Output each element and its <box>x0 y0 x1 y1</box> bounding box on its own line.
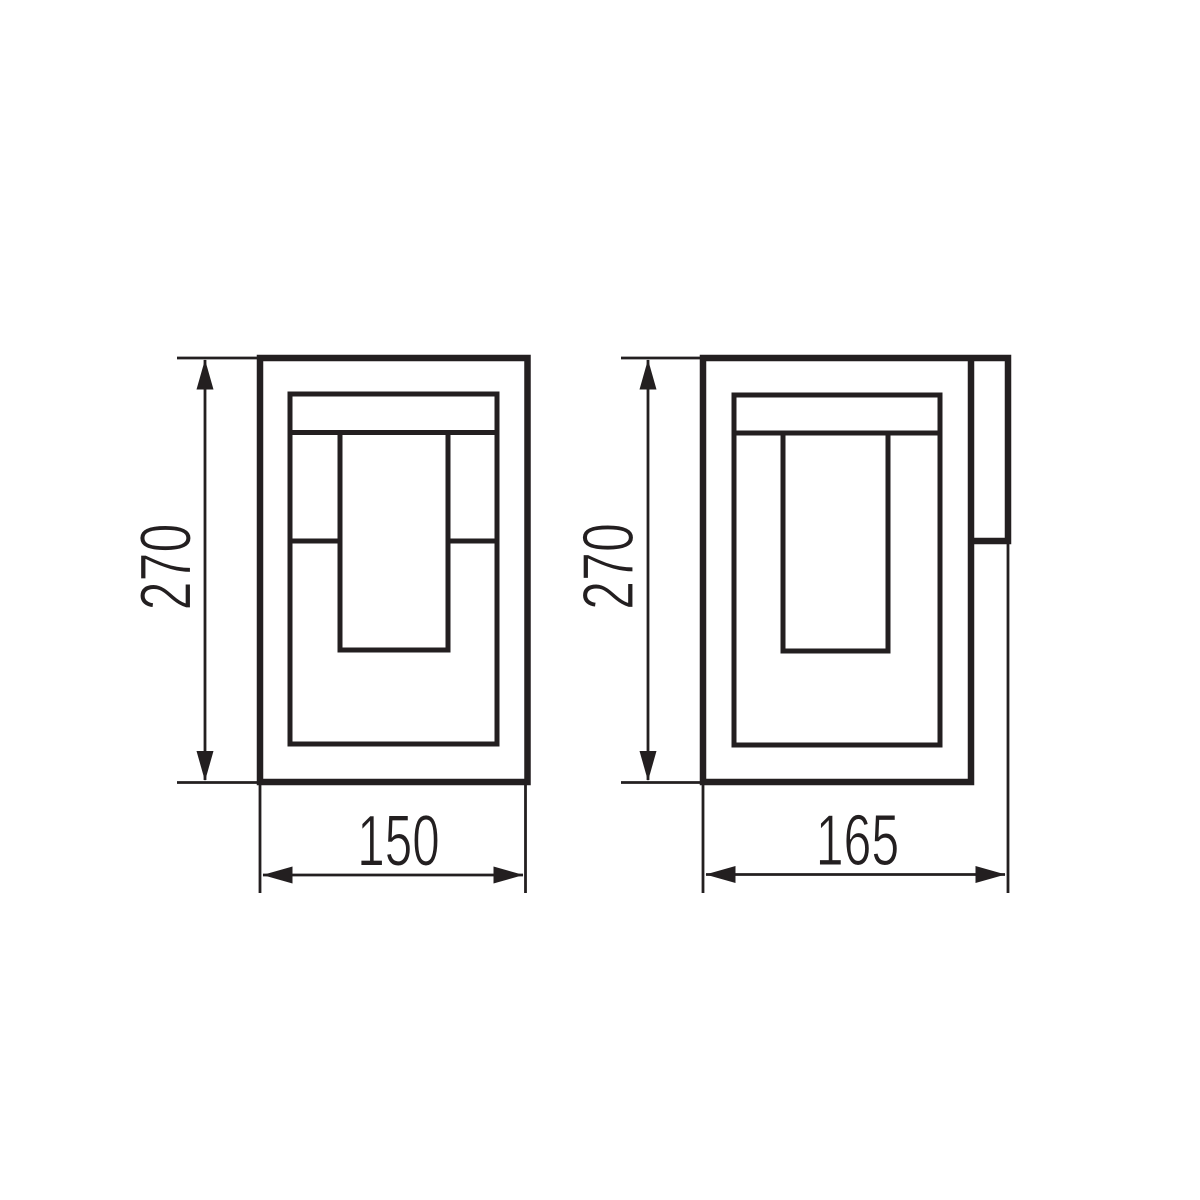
svg-text:150: 150 <box>357 802 439 882</box>
svg-text:165: 165 <box>816 801 900 881</box>
svg-text:270: 270 <box>569 523 649 610</box>
svg-text:270: 270 <box>127 524 207 611</box>
